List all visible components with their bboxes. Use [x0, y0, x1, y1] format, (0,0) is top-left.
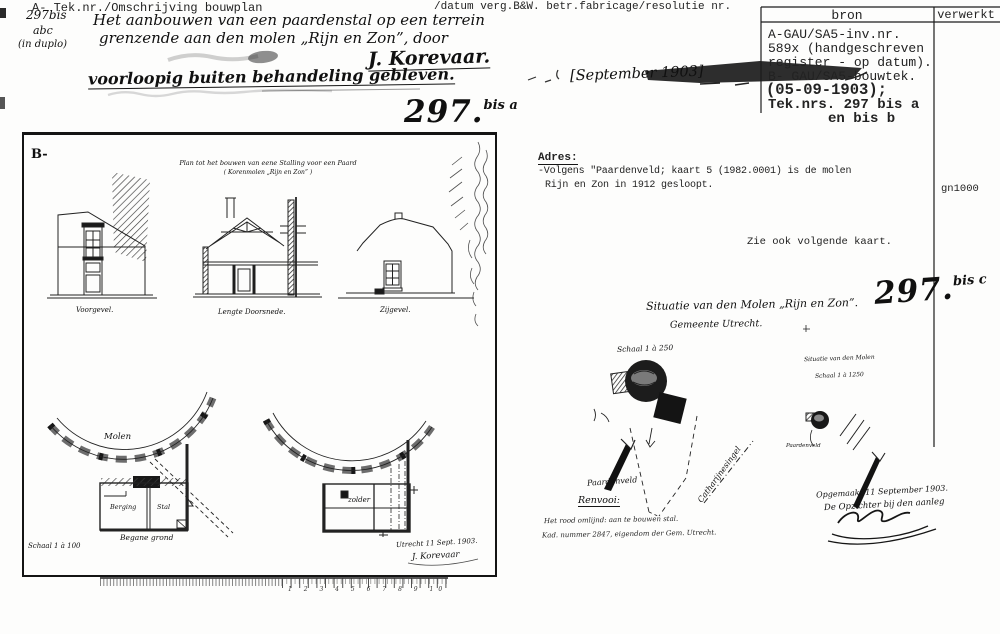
- bron-row: register - op datum).: [768, 55, 932, 70]
- table-header-verwerkt: verwerkt: [934, 8, 998, 22]
- frame-corner-mark: B-: [31, 147, 48, 162]
- bron-row: A-GAU/SA5-inv.nr.: [768, 27, 901, 42]
- adres-line: Rijn en Zon in 1912 gesloopt.: [545, 180, 713, 191]
- margin-duplo-note: (in duplo): [18, 39, 67, 50]
- margin-doc-letters: abc: [33, 24, 53, 37]
- plan-label-zolder: zolder: [348, 496, 370, 504]
- caption-voorgevel: Voorgevel.: [76, 306, 113, 314]
- plan-label-molen: Molen: [104, 432, 131, 442]
- renvooi-label: Renvooi:: [578, 495, 620, 507]
- situatie-linework: [594, 325, 936, 544]
- drawing-frame: [22, 132, 497, 577]
- drawing-subtitle: ( Korenmolen „Rijn en Zon” ): [198, 169, 338, 176]
- bron-row: 589x (handgeschreven: [768, 41, 924, 56]
- scale-ruler: [100, 578, 448, 583]
- margin-doc-number: 297bis: [26, 8, 67, 22]
- sheet-number-297-bis-a: 297.bis a: [404, 94, 518, 130]
- inset-label-paardenveld: Paardenveld: [786, 443, 821, 449]
- see-also-note: Zie ook volgende kaart.: [747, 236, 892, 248]
- sheet-number-main: 297.: [404, 94, 484, 130]
- room-label-left: Berging: [110, 503, 136, 511]
- situatie-subtitle: Gemeente Utrecht.: [670, 318, 762, 331]
- adres-line: -Volgens "Paardenveld; kaart 5 (1982.000…: [538, 166, 851, 177]
- caption-doorsnede: Lengte Doorsnede.: [218, 308, 285, 316]
- scanned-archive-sheet: A- Tek.nr./Omschrijving bouwplan /datum …: [0, 0, 1000, 634]
- description-line: Het aanbouwen van een paardenstal op een…: [93, 11, 485, 29]
- description-line: grenzende aan den molen „Rijn en Zon”, d…: [99, 29, 448, 47]
- caption-zijgevel: Zijgevel.: [380, 306, 410, 314]
- table-header-bron: bron: [762, 8, 932, 23]
- sheet-number-suffix: bis c: [952, 272, 987, 289]
- adres-label: Adres:: [538, 152, 578, 165]
- sheet-number-suffix: bis a: [484, 98, 518, 113]
- drawing-title: Plan tot het bouwen van eene Stalling vo…: [168, 159, 368, 167]
- code-gn1000: gn1000: [941, 183, 979, 195]
- room-label-stal: Stal: [157, 503, 170, 511]
- bron-row-bold: en bis b: [828, 111, 895, 127]
- plan-caption-begane-grond: Begane grond: [120, 533, 173, 542]
- plan-scale-label: Schaal 1 à 100: [28, 542, 80, 550]
- sheet-number-main: 297.: [873, 270, 955, 311]
- ruler-numbers: 1 2 3 4 5 6 7 8 9 10: [288, 586, 447, 593]
